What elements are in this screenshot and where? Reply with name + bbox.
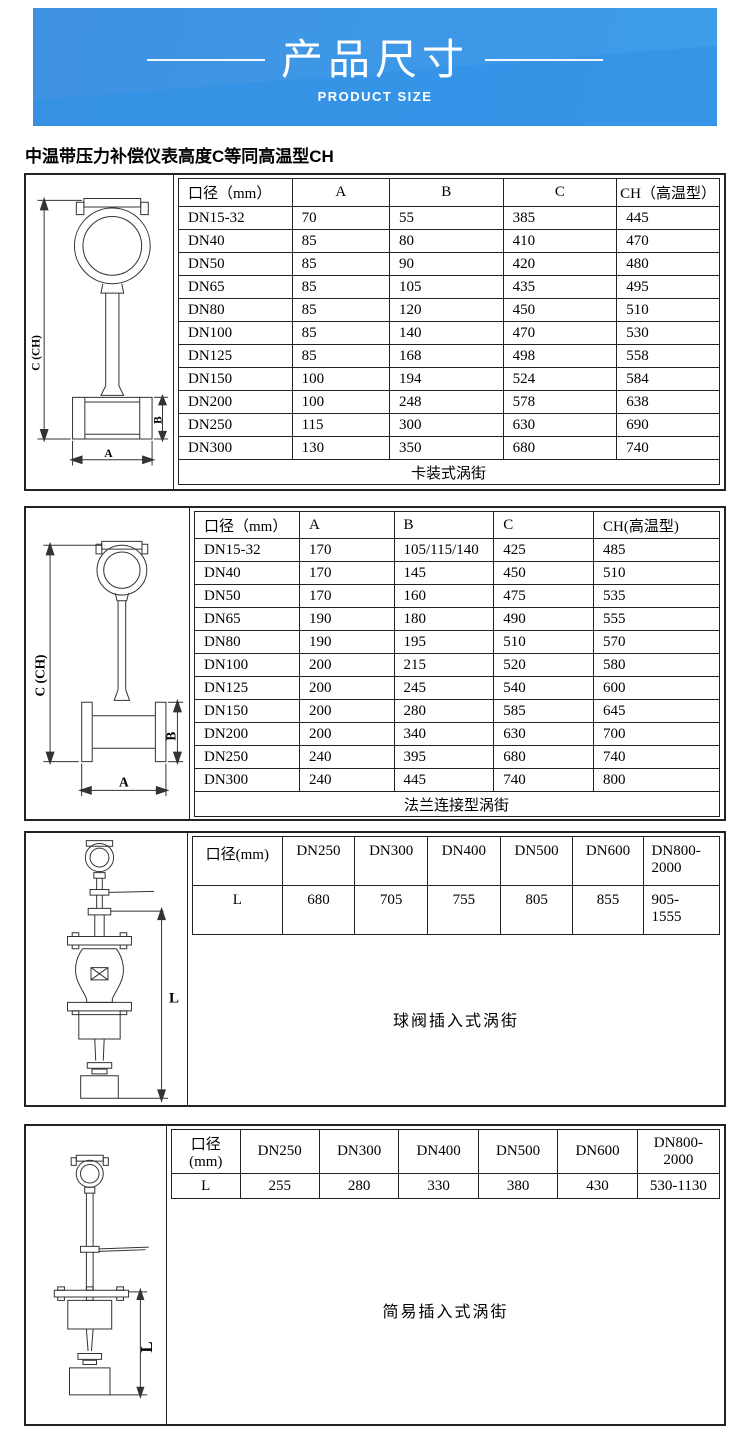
table-cell: 255 [240,1174,319,1199]
row-header: DN150 [179,368,293,391]
table-cell: 445 [617,207,720,230]
table-cell: 510 [494,631,594,654]
column-header: DN250 [282,837,355,886]
column-header: 口径（mm） [195,512,300,539]
svg-text:C (CH): C (CH) [30,335,42,371]
row-header: DN250 [179,414,293,437]
clamp-vortex-diagram: C (CH) B [26,175,174,489]
table-cell: 520 [494,654,594,677]
banner-right-line [485,59,603,61]
table-cell: 530-1130 [637,1174,719,1199]
table-row: L255280330380430530-1130 [172,1174,720,1199]
column-header: DN300 [319,1130,398,1174]
column-header: B [389,179,503,207]
table-cell: 194 [389,368,503,391]
row-header: DN200 [195,723,300,746]
row-header: DN300 [195,769,300,792]
column-header: C [494,512,594,539]
banner-content: 产品尺寸 PRODUCT SIZE [33,8,717,126]
table-cell: 85 [292,299,389,322]
column-header: DN800- 2000 [643,837,719,886]
table-cell: 445 [394,769,494,792]
table-cell: 450 [503,299,617,322]
header-row: 口径(mm)DN250DN300DN400DN500DN600DN800- 20… [193,837,720,886]
table-row: DN12585168498558 [179,345,720,368]
table-row: DN150200280585645 [195,700,720,723]
table-cell: 630 [494,723,594,746]
table-cell: 115 [292,414,389,437]
svg-text:A: A [118,775,128,790]
table-cell: 140 [389,322,503,345]
row-header: DN65 [195,608,300,631]
table-cell: 630 [503,414,617,437]
table-cell: 170 [300,539,395,562]
table-cell: 340 [394,723,494,746]
table-cell: 645 [594,700,720,723]
table-cell: 200 [300,700,395,723]
row-header: DN200 [179,391,293,414]
table-cell: 535 [594,585,720,608]
row-header: DN80 [195,631,300,654]
simple-insert-drawing: L [29,1128,164,1422]
table-cell: 600 [594,677,720,700]
table-cell: 578 [503,391,617,414]
ball-valve-diagram: L [26,833,188,1105]
table-cell: 100 [292,368,389,391]
table-cell: 200 [300,723,395,746]
row-header: DN300 [179,437,293,460]
section-ball-valve-vortex: L 口径(mm)DN250DN300DN400DN500DN600DN800- … [24,831,726,1107]
table-cell: 705 [355,886,428,935]
row-header: DN40 [195,562,300,585]
table-cell: 485 [594,539,720,562]
table-cell: 420 [503,253,617,276]
section-simple-insert-vortex: L 口径 (mm)DN250DN300DN400DN500DN600DN800-… [24,1124,726,1426]
page: { "banner": { "title": "产品尺寸", "subtitle… [0,8,750,1452]
column-header: DN300 [355,837,428,886]
column-header: DN600 [573,837,643,886]
table-cell: 755 [428,886,501,935]
table-cell: 805 [500,886,573,935]
table-cell: 510 [617,299,720,322]
table-cell: 395 [394,746,494,769]
table-cell: 280 [319,1174,398,1199]
table-row: DN40170145450510 [195,562,720,585]
table-cell: 680 [503,437,617,460]
column-header: DN250 [240,1130,319,1174]
table-cell: 105/115/140 [394,539,494,562]
page-subtitle: PRODUCT SIZE [318,89,433,104]
table-cell: 200 [300,654,395,677]
table-cell: 85 [292,253,389,276]
row-header: DN150 [195,700,300,723]
row-header: DN50 [179,253,293,276]
table-cell: 540 [494,677,594,700]
column-header: DN800- 2000 [637,1130,719,1174]
table-cell: 240 [300,746,395,769]
row-header: DN125 [179,345,293,368]
table-cell: 580 [594,654,720,677]
page-title: 产品尺寸 [281,39,469,81]
column-header: B [394,512,494,539]
ball-valve-drawing: L [29,835,185,1103]
table-cell: 800 [594,769,720,792]
table-cell: 330 [399,1174,478,1199]
table-cell: 498 [503,345,617,368]
row-header: DN100 [195,654,300,677]
svg-text:C (CH): C (CH) [32,655,47,697]
table-cell: 495 [617,276,720,299]
table-cell: 85 [292,322,389,345]
table-cell: 190 [300,608,395,631]
table-row: DN300130350680740 [179,437,720,460]
row-header: DN65 [179,276,293,299]
table-cell: 470 [503,322,617,345]
table-row: DN10085140470530 [179,322,720,345]
table-cell: 510 [594,562,720,585]
table-cell: 385 [503,207,617,230]
table-cell: 380 [478,1174,557,1199]
row-header: DN80 [179,299,293,322]
table-cell: 145 [394,562,494,585]
table-cell: 248 [389,391,503,414]
row-header: DN50 [195,585,300,608]
table-row: DN15-327055385445 [179,207,720,230]
table-row: DN100200215520580 [195,654,720,677]
table-cell: 680 [494,746,594,769]
table-cell: 740 [494,769,594,792]
table-cell: 450 [494,562,594,585]
flange-vortex-diagram: C (CH) B [26,508,190,819]
column-header: DN600 [558,1130,637,1174]
caption-row: 法兰连接型涡街 [195,792,720,817]
header-row: 口径（mm）ABCCH(高温型) [195,512,720,539]
table-cell: 90 [389,253,503,276]
flange-vortex-table-area: 口径（mm）ABCCH(高温型)DN15-32170105/115/140425… [190,508,724,819]
table-cell: 85 [292,345,389,368]
table-row: DN80190195510570 [195,631,720,654]
svg-text:L: L [169,990,179,1006]
row-header: DN15-32 [179,207,293,230]
table-cell: 240 [300,769,395,792]
table-cell: 700 [594,723,720,746]
table-row: DN250115300630690 [179,414,720,437]
column-header: 口径（mm） [179,179,293,207]
column-header: DN400 [399,1130,478,1174]
ball-valve-caption: 球阀插入式涡街 [192,935,720,1102]
table-cell: 555 [594,608,720,631]
header-row: 口径 (mm)DN250DN300DN400DN500DN600DN800- 2… [172,1130,720,1174]
clamp-vortex-drawing: C (CH) B [29,178,171,486]
simple-insert-caption: 简易插入式涡街 [171,1199,720,1421]
clamp-vortex-table: 口径（mm）ABCCH（高温型）DN15-327055385445DN40858… [178,178,720,485]
table-cell: 480 [617,253,720,276]
row-header: DN15-32 [195,539,300,562]
table-row: DN250240395680740 [195,746,720,769]
column-header: 口径(mm) [193,837,283,886]
table-cell: 170 [300,562,395,585]
table-cell: 170 [300,585,395,608]
table-cell: 70 [292,207,389,230]
table-cell: 558 [617,345,720,368]
table-row: DN508590420480 [179,253,720,276]
banner-left-line [147,59,265,61]
table-cell: 690 [617,414,720,437]
table-row: DN200200340630700 [195,723,720,746]
table-cell: 475 [494,585,594,608]
table-cell: 100 [292,391,389,414]
table-row: DN200100248578638 [179,391,720,414]
svg-text:A: A [104,448,113,460]
table-cell: 215 [394,654,494,677]
table-cell: 245 [394,677,494,700]
table-cell: 130 [292,437,389,460]
ball-valve-table: 口径(mm)DN250DN300DN400DN500DN600DN800- 20… [192,836,720,935]
table-cell: 120 [389,299,503,322]
table-row: DN50170160475535 [195,585,720,608]
table-caption: 卡装式涡街 [179,460,720,485]
table-cell: 470 [617,230,720,253]
section-clamp-vortex: C (CH) B [24,173,726,491]
simple-insert-table-area: 口径 (mm)DN250DN300DN400DN500DN600DN800- 2… [167,1126,724,1424]
table-cell: 584 [617,368,720,391]
table-cell: 410 [503,230,617,253]
flange-vortex-drawing: C (CH) B [29,511,187,816]
table-cell: 435 [503,276,617,299]
table-row: DN6585105435495 [179,276,720,299]
note-text: 中温带压力补偿仪表高度C等同高温型CH [25,142,750,167]
row-header: DN125 [195,677,300,700]
column-header: C [503,179,617,207]
table-cell: 524 [503,368,617,391]
column-header: DN500 [500,837,573,886]
table-cell: 55 [389,207,503,230]
table-row: DN150100194524584 [179,368,720,391]
table-cell: 855 [573,886,643,935]
row-header: DN100 [179,322,293,345]
table-cell: 350 [389,437,503,460]
table-row: DN65190180490555 [195,608,720,631]
table-cell: 195 [394,631,494,654]
table-cell: 168 [389,345,503,368]
simple-insert-diagram: L [26,1126,167,1424]
svg-text:B: B [163,732,178,741]
table-cell: 280 [394,700,494,723]
row-header: DN250 [195,746,300,769]
table-cell: 570 [594,631,720,654]
table-cell: 740 [594,746,720,769]
section-flange-vortex: C (CH) B [24,506,726,821]
table-cell: 740 [617,437,720,460]
table-cell: 638 [617,391,720,414]
table-row: DN8085120450510 [179,299,720,322]
column-header: DN400 [428,837,501,886]
table-cell: 85 [292,276,389,299]
svg-text:L: L [137,1341,156,1352]
table-row: DN300240445740800 [195,769,720,792]
table-caption: 法兰连接型涡街 [195,792,720,817]
table-cell: 200 [300,677,395,700]
table-cell: 85 [292,230,389,253]
table-cell: 490 [494,608,594,631]
table-cell: 530 [617,322,720,345]
column-header: CH（高温型） [617,179,720,207]
table-cell: 180 [394,608,494,631]
table-cell: 430 [558,1174,637,1199]
row-header: DN40 [179,230,293,253]
row-header: L [172,1174,241,1199]
column-header: A [292,179,389,207]
clamp-vortex-table-area: 口径（mm）ABCCH（高温型）DN15-327055385445DN40858… [174,175,724,489]
table-cell: 300 [389,414,503,437]
column-header: CH(高温型) [594,512,720,539]
column-header: A [300,512,395,539]
header-row: 口径（mm）ABCCH（高温型） [179,179,720,207]
flange-vortex-table: 口径（mm）ABCCH(高温型)DN15-32170105/115/140425… [194,511,720,817]
table-row: DN15-32170105/115/140425485 [195,539,720,562]
row-header: L [193,886,283,935]
column-header: DN500 [478,1130,557,1174]
ball-valve-table-area: 口径(mm)DN250DN300DN400DN500DN600DN800- 20… [188,833,724,1105]
table-cell: 905- 1555 [643,886,719,935]
banner: 产品尺寸 PRODUCT SIZE [33,8,717,126]
svg-text:B: B [152,416,164,424]
table-cell: 190 [300,631,395,654]
table-cell: 105 [389,276,503,299]
table-cell: 585 [494,700,594,723]
table-row: L680705755805855905- 1555 [193,886,720,935]
caption-row: 卡装式涡街 [179,460,720,485]
table-cell: 425 [494,539,594,562]
table-row: DN408580410470 [179,230,720,253]
table-cell: 680 [282,886,355,935]
simple-insert-table: 口径 (mm)DN250DN300DN400DN500DN600DN800- 2… [171,1129,720,1199]
table-row: DN125200245540600 [195,677,720,700]
column-header: 口径 (mm) [172,1130,241,1174]
table-cell: 160 [394,585,494,608]
table-cell: 80 [389,230,503,253]
